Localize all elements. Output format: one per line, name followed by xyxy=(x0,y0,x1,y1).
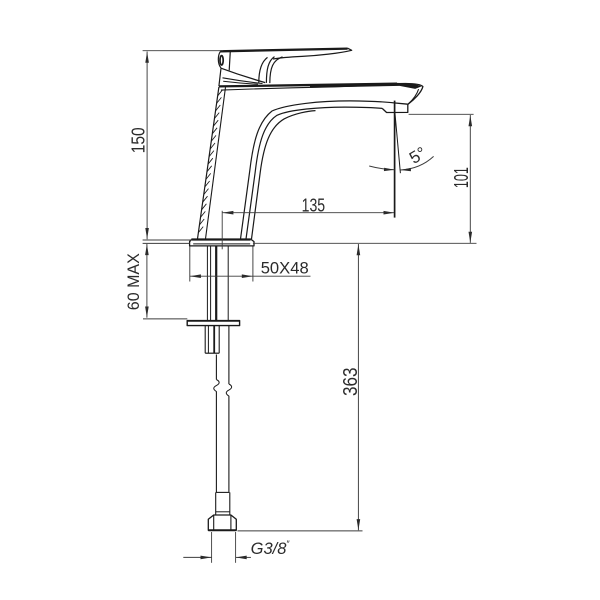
svg-text:G3/8: G3/8 xyxy=(251,540,288,558)
svg-text:363: 363 xyxy=(340,367,362,396)
svg-text:60 MAX: 60 MAX xyxy=(124,253,143,310)
svg-text:101: 101 xyxy=(451,167,473,188)
svg-text:50X48: 50X48 xyxy=(261,258,309,277)
svg-text:135: 135 xyxy=(302,196,326,216)
svg-text:150: 150 xyxy=(127,127,148,153)
